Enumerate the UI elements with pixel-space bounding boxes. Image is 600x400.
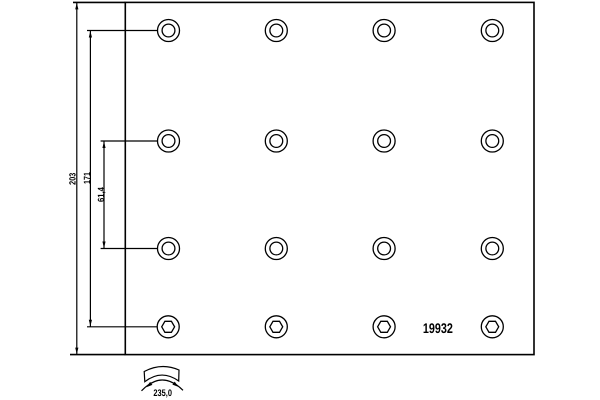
svg-text:235,0: 235,0 <box>153 388 172 399</box>
svg-text:171: 171 <box>82 172 92 184</box>
svg-text:61,4: 61,4 <box>96 187 106 202</box>
svg-text:203: 203 <box>67 173 77 185</box>
svg-text:19932: 19932 <box>423 320 453 336</box>
